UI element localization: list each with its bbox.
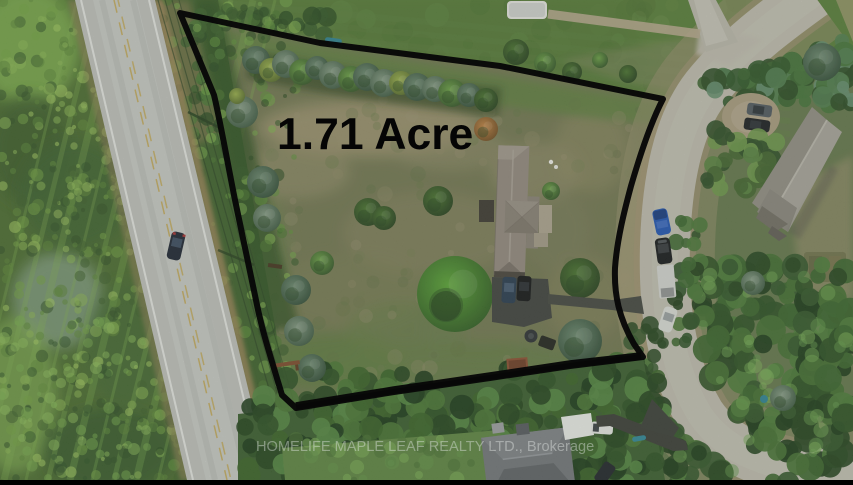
svg-text:HOMELIFE MAPLE LEAF REALTY LTD: HOMELIFE MAPLE LEAF REALTY LTD., Brokera… — [256, 439, 594, 455]
svg-text:1.71 Acre: 1.71 Acre — [277, 110, 473, 159]
